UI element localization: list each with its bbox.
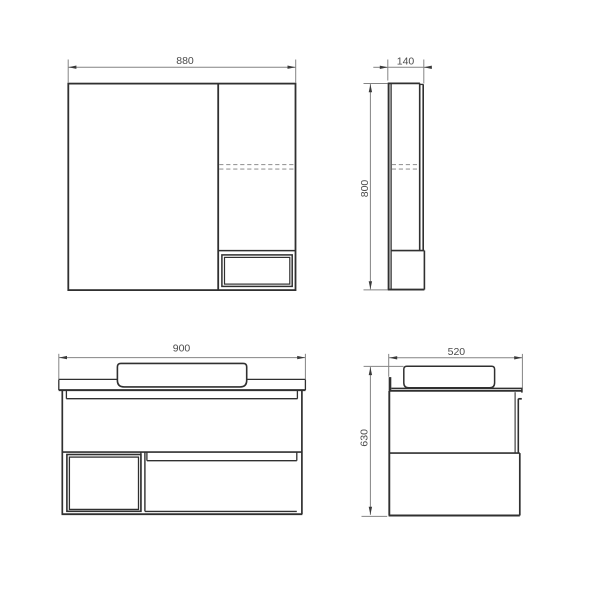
svg-text:630: 630	[359, 429, 371, 447]
svg-text:900: 900	[173, 343, 191, 355]
svg-text:880: 880	[176, 55, 194, 67]
svg-text:520: 520	[448, 346, 466, 358]
svg-text:140: 140	[397, 56, 415, 68]
svg-text:800: 800	[359, 180, 371, 198]
